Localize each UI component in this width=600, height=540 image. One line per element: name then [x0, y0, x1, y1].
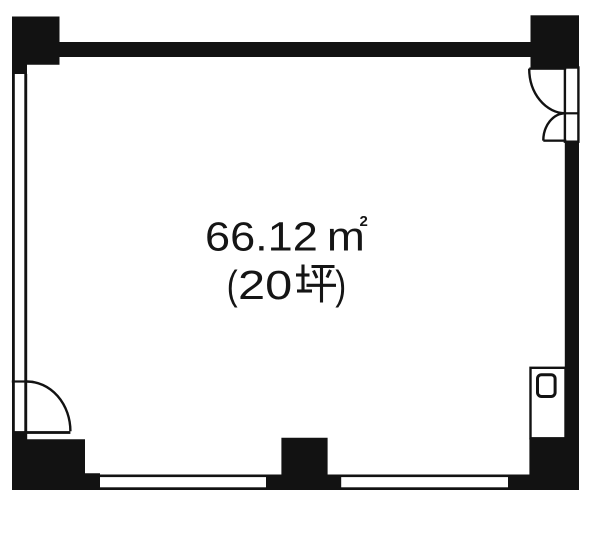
svg-text:(: (	[227, 261, 238, 307]
svg-text:66.12: 66.12	[205, 214, 318, 260]
svg-text:2: 2	[360, 213, 368, 230]
svg-text:20: 20	[238, 261, 292, 307]
svg-text:): )	[335, 261, 346, 307]
